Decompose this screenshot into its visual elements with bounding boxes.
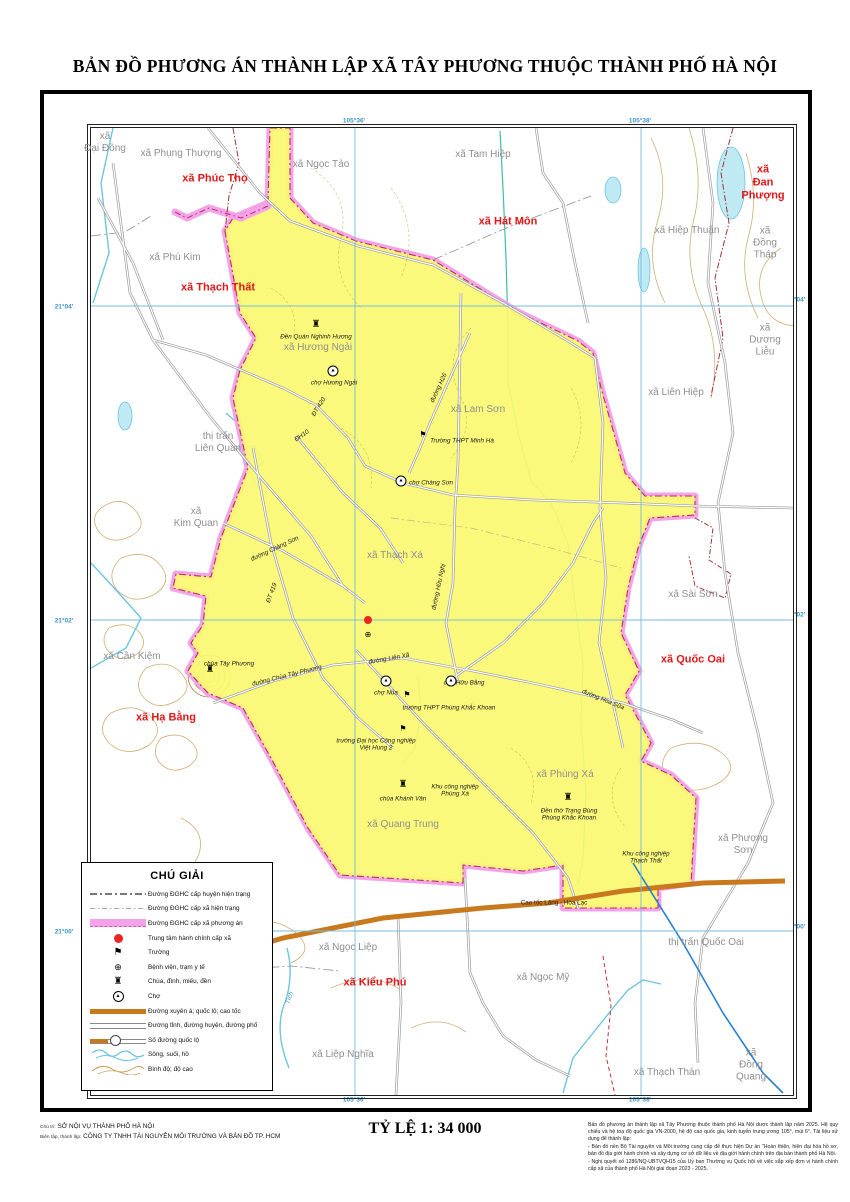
- temple-icon: ♜: [564, 793, 573, 803]
- credit-org-2: CÔNG TY TNHH TÀI NGUYÊN MÔI TRƯỜNG VÀ BẢ…: [83, 1133, 280, 1140]
- road-double-line-icon: [88, 1020, 148, 1032]
- market-icon: ▲: [88, 990, 148, 1002]
- school-icon: ⚑: [403, 691, 410, 699]
- boundary-commune-line-icon: [88, 903, 148, 915]
- commune-center-dot-icon: [88, 932, 148, 944]
- credit-org-1: SỞ NỘI VỤ THÀNH PHỐ HÀ NỘI: [58, 1123, 155, 1130]
- note-line: Bản đồ phương án thành lập xã Tây Phương…: [588, 1122, 838, 1143]
- credit-role-2: Biên tập, thành lập:: [40, 1135, 81, 1140]
- school-icon: ⚑: [419, 431, 426, 439]
- contour-lines-icon: [88, 1063, 148, 1075]
- legend-item: ⊕ Bệnh viện, trạm y tế: [82, 960, 272, 975]
- legend-item: Đường tỉnh, đường huyện, đường phố: [82, 1018, 272, 1033]
- page-title: BẢN ĐỒ PHƯƠNG ÁN THÀNH LẬP XÃ TÂY PHƯƠNG…: [0, 56, 850, 77]
- hospital-icon: ⊕: [365, 631, 372, 639]
- boundary-proposed-band-icon: [88, 917, 148, 929]
- temple-icon: ♜: [399, 780, 408, 790]
- map-notes: Bản đồ phương án thành lập xã Tây Phương…: [588, 1122, 838, 1174]
- coord-left-lat1: 21°04': [55, 304, 74, 311]
- legend-item: Số đường quốc lộ: [82, 1033, 272, 1048]
- coord-bottom-lon1: 105°36': [343, 1097, 365, 1104]
- legend-item: ▲ Chợ: [82, 989, 272, 1004]
- legend-box: CHÚ GIẢI Đường ĐGHC cấp huyện hiện trạng…: [81, 862, 273, 1091]
- temple-icon: ♜: [312, 320, 321, 330]
- coord-top-lon1: 105°36': [343, 118, 365, 125]
- coord-top-lon2: 105°38': [629, 118, 651, 125]
- coord-bottom-lon2: 105°38': [629, 1097, 651, 1104]
- legend-item: Đường ĐGHC cấp xã phương án: [82, 916, 272, 931]
- map-sheet: { "title": "BẢN ĐỒ PHƯƠNG ÁN THÀNH LẬP X…: [0, 0, 850, 1202]
- legend-item: Sông, suối, hồ: [82, 1048, 272, 1063]
- market-icon: ▲: [328, 366, 339, 377]
- legend-title: CHÚ GIẢI: [82, 870, 272, 882]
- note-line: - Nghị quyết số 1286/NQ-UBTVQH15 của Uỷ …: [588, 1159, 838, 1173]
- market-icon: ▲: [396, 476, 407, 487]
- legend-item: ♜ Chùa, đình, miếu, đền: [82, 975, 272, 990]
- map-scale: TỶ LỆ 1: 34 000: [300, 1120, 550, 1138]
- boundary-district-line-icon: [88, 888, 148, 900]
- temple-icon: ♜: [206, 665, 215, 675]
- hospital-cross-icon: ⊕: [88, 961, 148, 973]
- market-icon: ▲: [446, 676, 457, 687]
- legend-item: Đường ĐGHC cấp huyện hiện trạng: [82, 887, 272, 902]
- note-line: - Bản đồ nền Bộ Tài nguyên và Môi trường…: [588, 1144, 838, 1158]
- map-frame: 105°36' 105°38' 105°36' 105°38' 21°04' 2…: [40, 90, 812, 1112]
- route-number-icon: [88, 1034, 148, 1046]
- coord-left-lat3: 21°00': [55, 929, 74, 936]
- coord-left-lat2: 21°02': [55, 618, 74, 625]
- legend-item: ⚑ Trường: [82, 945, 272, 960]
- water-lines-icon: [88, 1049, 148, 1061]
- expressway-band-icon: [88, 1005, 148, 1017]
- legend-item: Bình độ; độ cao: [82, 1062, 272, 1077]
- legend-item: Đường xuyên á; quốc lộ; cao tốc: [82, 1004, 272, 1019]
- credit-role-1: Chủ trì:: [40, 1125, 56, 1130]
- school-flag-icon: ⚑: [88, 947, 148, 959]
- market-icon: ▲: [381, 676, 392, 687]
- legend-item: Trung tâm hành chính cấp xã: [82, 931, 272, 946]
- blue-road: [633, 863, 783, 1093]
- school-icon: ⚑: [399, 725, 406, 733]
- proposed-commune-area: [173, 128, 696, 908]
- center-icon: [364, 616, 372, 624]
- pagoda-icon: ♜: [88, 976, 148, 988]
- legend-item: Đường ĐGHC cấp xã hiện trạng: [82, 902, 272, 917]
